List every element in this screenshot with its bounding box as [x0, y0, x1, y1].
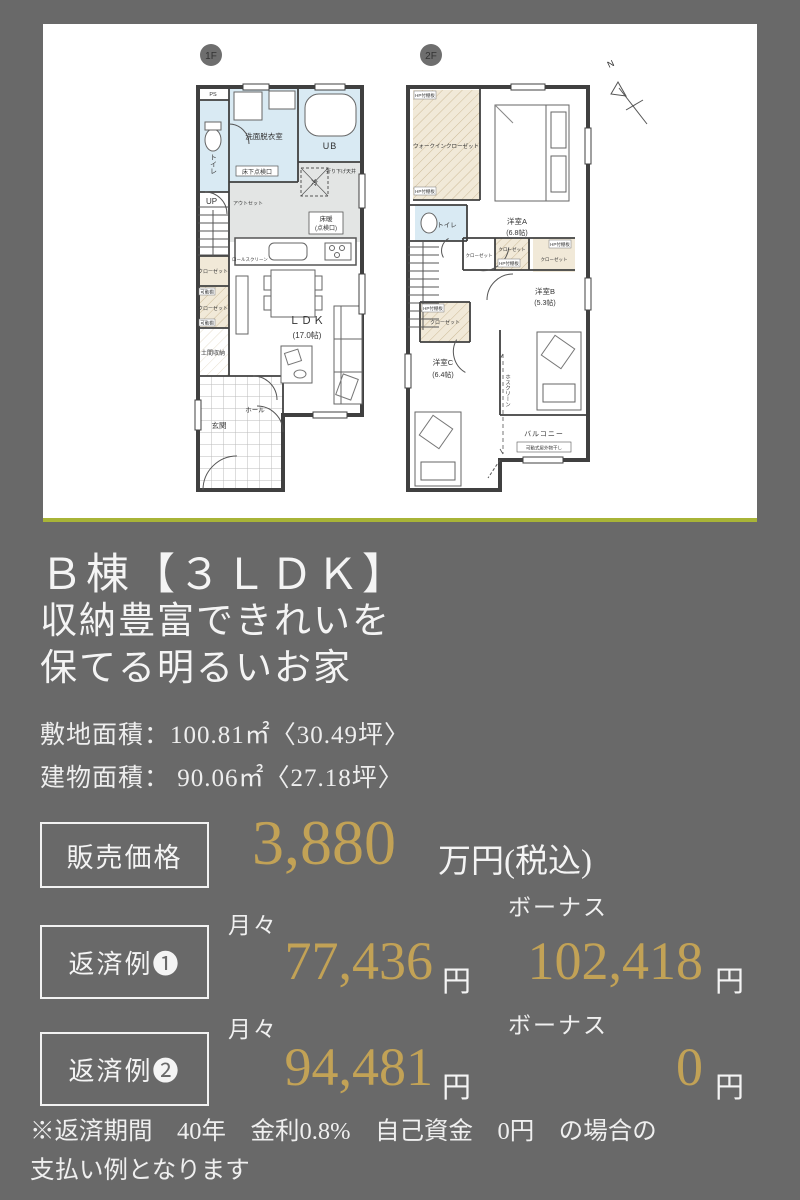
entrance-tile-floor — [198, 376, 283, 490]
repayment2-bonus-unit: 円 — [715, 1064, 744, 1106]
svg-text:可動棚: 可動棚 — [200, 289, 214, 296]
floor-heating-label: 床暖 (点検口) — [309, 212, 343, 234]
closet2-label: クローゼット — [198, 305, 228, 312]
balcony-label: バルコニー — [524, 430, 564, 438]
doma-label: 土間収納 — [201, 349, 225, 357]
floorplan-panel: 1F — [43, 24, 757, 522]
svg-text:床下点検口: 床下点検口 — [242, 168, 272, 176]
repayment2-bonus-value: 0 — [488, 1036, 703, 1098]
toilet-2f-label: トイレ — [437, 222, 457, 229]
closet-hall-label: クローゼット — [466, 252, 493, 259]
catch-copy-line2: 保てる明るいお家 — [40, 645, 391, 692]
stairs-up-label: UP — [206, 197, 217, 206]
tv-board — [236, 276, 248, 334]
svg-text:床暖: 床暖 — [320, 214, 334, 223]
svg-text:HP付棚板: HP付棚板 — [415, 188, 435, 195]
hall-label: ホール — [245, 406, 265, 414]
floor-1f: 1F — [195, 44, 365, 490]
closet1-label: クローゼット — [198, 268, 228, 275]
repayment1-bonus-label: ボーナス — [508, 888, 608, 922]
repayment2-monthly-value: 94,481 — [218, 1036, 433, 1098]
bed-room-c — [415, 412, 461, 486]
catch-copy: 収納豊富できれいを 保てる明るいお家 — [40, 598, 391, 692]
svg-text:可動式屋外物干し: 可動式屋外物干し — [526, 445, 562, 452]
price-unit: 万円(税込) — [438, 834, 592, 882]
room-b-size: (5.3帖) — [534, 298, 555, 307]
svg-text:HP付棚板: HP付棚板 — [499, 260, 519, 267]
badge-2f: 2F — [425, 51, 437, 62]
room-c-label: 洋室C — [433, 357, 454, 367]
bathtub — [305, 94, 356, 136]
vanity — [269, 91, 295, 109]
sofa — [334, 306, 362, 404]
kitchen-sink — [269, 243, 307, 260]
repayment2-label-box: 返済例❷ — [40, 1032, 209, 1106]
dining-table — [271, 270, 315, 317]
svg-text:クローゼット: クローゼット — [541, 256, 568, 263]
repayment-note-line1: ※返済期間 40年 金利0.8% 自己資金 0円 の場合の — [30, 1112, 657, 1151]
toilet-bowl-1f — [205, 129, 221, 151]
svg-text:HP付棚板: HP付棚板 — [550, 241, 570, 248]
flyer-page: 1F — [0, 0, 800, 1200]
genkan-label: 玄関 — [212, 420, 227, 430]
area-info: 敷地面積：100.81㎡〈30.49坪〉 建物面積： 90.06㎡〈27.18坪… — [40, 714, 410, 800]
repayment-note-line2: 支払い例となります — [30, 1151, 657, 1190]
svg-text:ホスクリーン: ホスクリーン — [504, 374, 511, 408]
repayment2-bonus-label: ボーナス — [508, 1006, 608, 1040]
ps-label: PS — [209, 92, 217, 98]
toilet-bowl-2f — [421, 213, 437, 233]
site-area: 敷地面積：100.81㎡〈30.49坪〉 — [40, 714, 410, 757]
repayment1-monthly-unit: 円 — [442, 958, 471, 1000]
room-a-size: (6.8帖) — [506, 228, 527, 237]
washing-machine — [234, 92, 262, 120]
room-a-label: 洋室A — [507, 216, 527, 226]
repayment1-bonus-value: 102,418 — [488, 930, 703, 992]
price-label-box: 販売価格 — [40, 822, 209, 888]
drying-label: 可動式屋外物干し — [517, 442, 571, 452]
ldk-size-label: (17.0帖) — [293, 330, 322, 340]
room-c-size: (6.4帖) — [432, 370, 453, 379]
outset-label: アウトセット — [233, 200, 263, 207]
toilet-1f-label: トイレ — [210, 154, 218, 175]
svg-text:(点検口): (点検口) — [315, 224, 337, 232]
bed-room-a — [495, 105, 569, 201]
repayment1-label: 返済例❶ — [68, 944, 180, 981]
repayment2-label: 返済例❷ — [68, 1051, 180, 1088]
building-area: 建物面積： 90.06㎡〈27.18坪〉 — [40, 757, 410, 800]
svg-text:冷: 冷 — [311, 178, 318, 187]
hoscreen: ホスクリーン — [500, 354, 511, 454]
svg-text:N: N — [606, 58, 616, 70]
svg-text:可動棚: 可動棚 — [200, 320, 214, 327]
svg-text:HP付棚板: HP付棚板 — [415, 92, 435, 99]
page-title: Ｂ棟【３ＬＤＫ】 — [40, 540, 408, 602]
closet-mid-label: クローゼット — [499, 246, 526, 253]
badge-1f: 1F — [205, 51, 217, 62]
catch-copy-line1: 収納豊富できれいを — [40, 598, 391, 645]
svg-text:クローゼット: クローゼット — [430, 319, 460, 326]
repayment2-monthly-unit: 円 — [442, 1064, 471, 1106]
bed-room-b — [537, 332, 581, 410]
ldk-label: ＬＤＫ — [289, 315, 325, 327]
repayment1-monthly-value: 77,436 — [218, 930, 433, 992]
north-arrow: N — [606, 58, 647, 124]
floor-2f: 2F N — [405, 44, 647, 490]
repayment-note: ※返済期間 40年 金利0.8% 自己資金 0円 の場合の 支払い例となります — [30, 1112, 657, 1190]
washroom-label: 洗面脱衣室 — [245, 131, 283, 141]
repayment1-label-box: 返済例❶ — [40, 925, 209, 999]
price-value: 3,880 — [218, 806, 430, 880]
ub-label: UB — [323, 141, 338, 151]
lowered-ceiling-label: 折り下げ天井 — [326, 168, 356, 175]
repayment1-bonus-unit: 円 — [715, 958, 744, 1000]
room-b-label: 洋室B — [535, 286, 555, 296]
svg-text:HP付棚板: HP付棚板 — [423, 305, 443, 312]
underfloor-hatch-label: 床下点検口 — [236, 166, 278, 176]
svg-text:ウォークインクローゼット: ウォークインクローゼット — [413, 142, 479, 150]
floorplan-drawing: 1F — [43, 24, 757, 518]
price-label: 販売価格 — [67, 836, 183, 875]
